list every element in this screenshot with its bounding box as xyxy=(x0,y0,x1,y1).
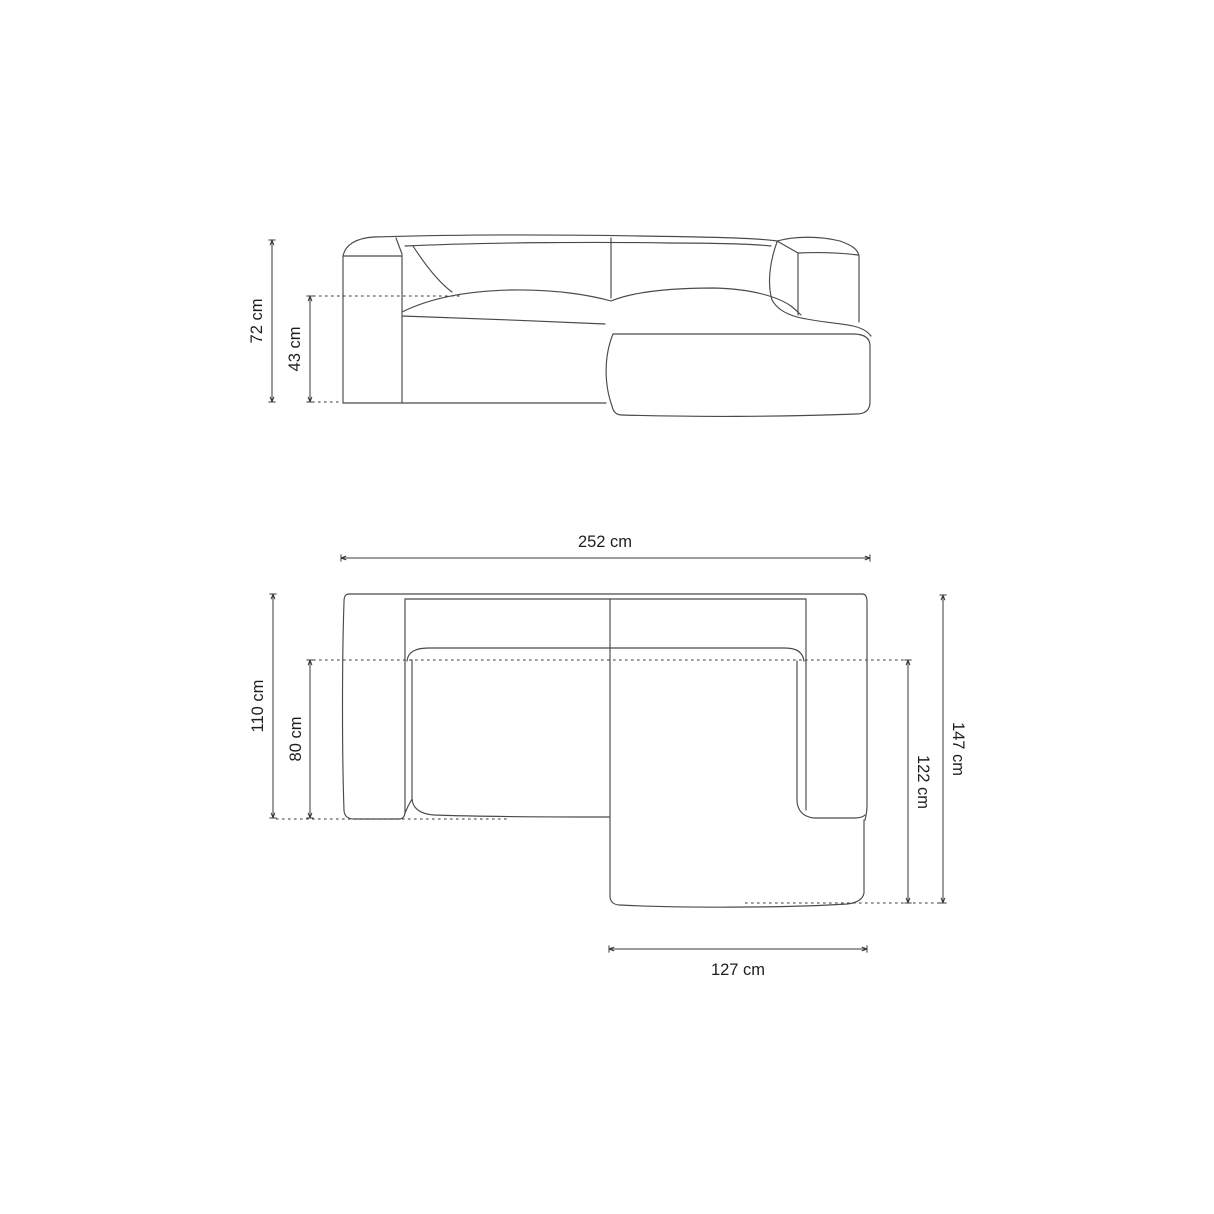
front-seat-height-label: 43 cm xyxy=(286,327,304,372)
plan-total-depth-label: 147 cm xyxy=(949,722,967,776)
front-overall-height-label: 72 cm xyxy=(248,299,266,344)
plan-overall-width-label: 252 cm xyxy=(578,533,632,551)
plan-side-depth-dimension: 110 cm xyxy=(249,594,273,818)
plan-side-depth-label: 110 cm xyxy=(249,680,267,733)
front-seat-cushion-left xyxy=(402,290,611,312)
plan-right-armrest xyxy=(806,594,867,820)
front-back-top-edge xyxy=(374,235,777,241)
front-overall-height-dimension: 72 cm xyxy=(248,240,272,402)
plan-chaise-depth-label: 122 cm xyxy=(914,755,932,809)
top-plan-view: 252 cm 110 cm 80 cm 147 cm 122 cm 127 cm xyxy=(249,533,967,979)
sofa-plan-outline xyxy=(343,594,868,907)
plan-chaise-cushion-edge xyxy=(797,661,865,818)
front-seat-height-dimension: 43 cm xyxy=(286,296,310,402)
diagram-svg: 72 cm 43 cm xyxy=(0,0,1214,1214)
plan-left-armrest xyxy=(343,594,406,819)
sofa-dimension-diagram: 72 cm 43 cm xyxy=(0,0,1214,1214)
plan-seat-depth-dimension: 80 cm xyxy=(287,660,310,818)
front-back-inner-edge xyxy=(405,242,771,246)
plan-chaise-width-label: 127 cm xyxy=(711,961,765,979)
front-chaise-block xyxy=(606,334,870,416)
front-right-armrest xyxy=(777,237,859,322)
plan-backrest-inner-edge xyxy=(407,648,804,661)
front-right-cushion-side xyxy=(770,242,871,336)
plan-total-depth-dimension: 147 cm xyxy=(943,595,967,903)
plan-chaise-depth-dimension: 122 cm xyxy=(908,660,932,903)
plan-left-seat-cushion xyxy=(405,660,609,817)
front-elevation-view: 72 cm 43 cm xyxy=(248,235,871,416)
plan-overall-width-dimension: 252 cm xyxy=(341,533,870,558)
front-left-cushion-side xyxy=(413,246,452,292)
sofa-front-outline xyxy=(343,235,871,416)
plan-chaise-width-dimension: 127 cm xyxy=(609,949,867,979)
plan-chaise-outline xyxy=(610,599,864,907)
front-left-armrest xyxy=(343,237,402,403)
plan-seat-depth-label: 80 cm xyxy=(287,717,305,762)
front-seat-front-edge xyxy=(402,316,605,324)
